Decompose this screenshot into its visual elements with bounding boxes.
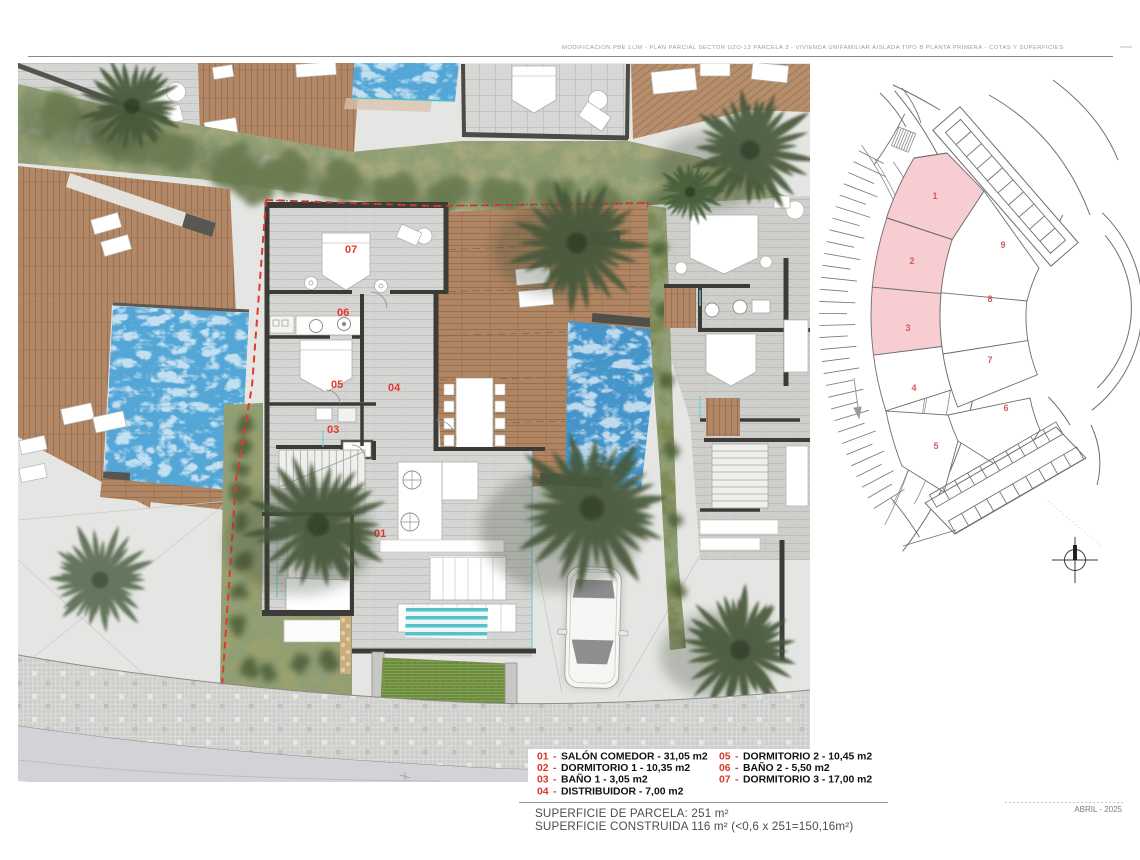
svg-text:2: 2 — [909, 256, 914, 266]
svg-text:-: - — [553, 786, 557, 797]
svg-text:04: 04 — [388, 382, 401, 394]
svg-text:ABRIL - 2025: ABRIL - 2025 — [1074, 805, 1122, 814]
svg-text:DORMITORIO 2 - 10,45 m2: DORMITORIO 2 - 10,45 m2 — [743, 752, 872, 763]
svg-text:04: 04 — [537, 786, 549, 797]
svg-text:BAÑO 1 - 3,05 m2: BAÑO 1 - 3,05 m2 — [561, 773, 648, 786]
svg-text:07: 07 — [345, 244, 357, 256]
svg-text:8: 8 — [987, 294, 992, 304]
svg-text:-: - — [553, 763, 557, 774]
svg-text:4: 4 — [911, 383, 916, 393]
svg-text:DORMITORIO 3 - 17,00 m2: DORMITORIO 3 - 17,00 m2 — [743, 775, 872, 786]
svg-text:-: - — [553, 752, 557, 763]
svg-text:SUPERFICIE CONSTRUIDA 116 m² (: SUPERFICIE CONSTRUIDA 116 m² (<0,6 x 251… — [535, 820, 853, 833]
svg-text:BAÑO 2 - 5,50 m2: BAÑO 2 - 5,50 m2 — [743, 761, 830, 774]
svg-text:02: 02 — [537, 763, 549, 774]
svg-text:03: 03 — [537, 775, 549, 786]
svg-text:07: 07 — [719, 775, 731, 786]
svg-text:06: 06 — [337, 307, 349, 319]
svg-text:DORMITORIO 1 - 10,35 m2: DORMITORIO 1 - 10,35 m2 — [561, 763, 690, 774]
svg-text:06: 06 — [719, 763, 731, 774]
svg-text:9: 9 — [1000, 240, 1005, 250]
svg-text:MODIFICACION PBE 1/JM - PLAN P: MODIFICACION PBE 1/JM - PLAN PARCIAL SEC… — [562, 45, 1064, 51]
svg-text:01: 01 — [537, 752, 549, 763]
svg-text:6: 6 — [1003, 403, 1008, 413]
svg-text:05: 05 — [331, 379, 343, 391]
svg-text:5: 5 — [933, 441, 938, 451]
svg-text:-: - — [735, 775, 739, 786]
svg-text:3: 3 — [905, 323, 910, 333]
svg-text:SALÓN COMEDOR - 31,05 m2: SALÓN COMEDOR - 31,05 m2 — [561, 750, 708, 763]
svg-text:SUPERFICIE DE PARCELA: 251 m²: SUPERFICIE DE PARCELA: 251 m² — [535, 807, 729, 820]
svg-text:DISTRIBUIDOR - 7,00 m2: DISTRIBUIDOR - 7,00 m2 — [561, 786, 684, 797]
svg-text:05: 05 — [719, 752, 731, 763]
svg-text:-: - — [735, 752, 739, 763]
svg-text:7: 7 — [987, 355, 992, 365]
svg-text:-: - — [735, 763, 739, 774]
svg-text:-: - — [553, 775, 557, 786]
svg-text:1: 1 — [932, 191, 937, 201]
svg-text:03: 03 — [327, 424, 339, 436]
